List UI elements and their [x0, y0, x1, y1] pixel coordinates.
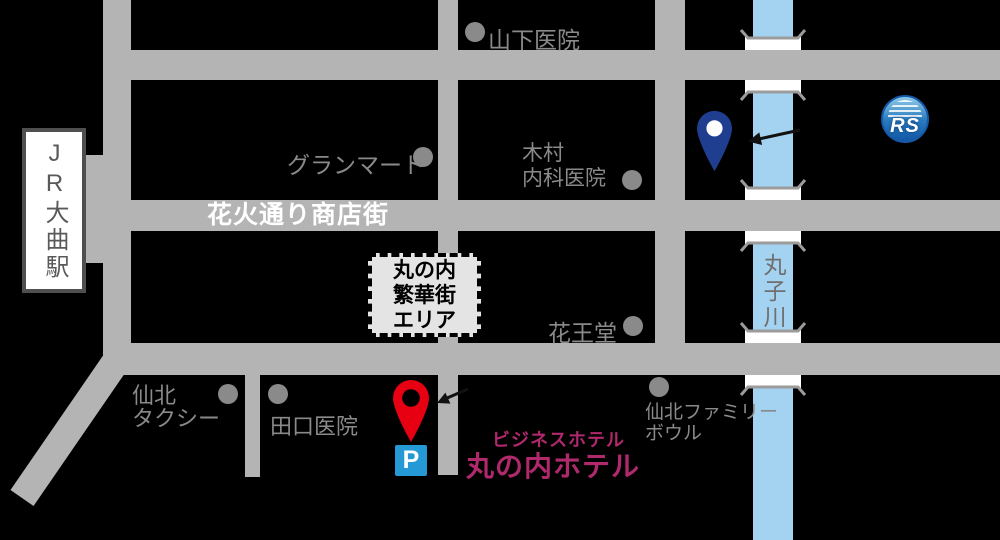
kimura-dot	[622, 170, 642, 190]
bowl-label-line1: 仙北ファミリー	[645, 402, 778, 423]
blue-pin-icon	[697, 110, 732, 172]
yamashita-dot	[465, 22, 485, 42]
downtown-area-box: 丸の内 繁華街 エリア	[368, 253, 481, 337]
hotel-name: 丸の内ホテル	[466, 445, 640, 485]
hanabi-street-label: 花火通り商店街	[207, 200, 389, 231]
kimura-label: 木村 内科医院	[522, 141, 606, 191]
kimura-label-line2: 内科医院	[522, 166, 606, 191]
kaodo-dot	[623, 316, 643, 336]
area-box-line2: 繁華街	[393, 283, 456, 308]
station-plaza-connector	[85, 155, 103, 263]
yamashita-label: 山下医院	[488, 21, 580, 55]
area-box-line3: エリア	[393, 308, 456, 333]
granmart-label: グランマート	[287, 146, 425, 180]
kimura-label-line1: 木村	[522, 141, 606, 166]
river-label: 丸子川	[761, 253, 784, 331]
kaodo-label: 花王堂	[548, 314, 617, 348]
rs-logo: RS	[881, 95, 929, 143]
rs-logo-text: RS	[883, 115, 927, 138]
bowl-dot	[649, 377, 669, 397]
red-pin-icon	[392, 380, 430, 442]
parking-icon: P	[395, 445, 427, 476]
area-box-line1: 丸の内	[393, 258, 456, 283]
taxi-label-line2: タクシー	[132, 407, 220, 430]
bowl-label-line2: ボウル	[645, 423, 778, 444]
station-label: JR大曲駅	[42, 140, 66, 281]
taxi-label: 仙北 タクシー	[132, 384, 220, 430]
taguchi-dot	[268, 384, 288, 404]
road-diagonal	[22, 360, 117, 498]
station-box: JR大曲駅	[22, 128, 86, 293]
bowl-label: 仙北ファミリー ボウル	[645, 402, 778, 444]
access-map: JR大曲駅 花火通り商店街 山下医院 グランマート 木村 内科医院 花王堂 仙北…	[0, 0, 1000, 540]
taguchi-label: 田口医院	[270, 409, 358, 441]
taxi-dot	[218, 384, 238, 404]
taxi-label-line1: 仙北	[132, 384, 220, 407]
